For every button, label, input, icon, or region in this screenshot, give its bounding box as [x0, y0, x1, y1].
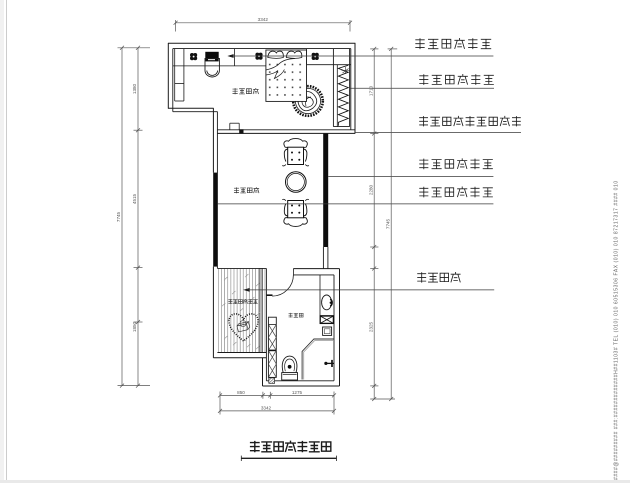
svg-text:1710: 1710	[368, 85, 373, 96]
svg-text:3342: 3342	[261, 405, 272, 410]
svg-text:2325: 2325	[368, 321, 373, 332]
svg-text:1275: 1275	[292, 390, 303, 395]
svg-text:####@######### ###:###########: ####@######### ###:#############H##1103#…	[614, 180, 620, 480]
svg-text:1850: 1850	[132, 321, 137, 332]
svg-text:3342: 3342	[258, 17, 269, 22]
svg-text:4515: 4515	[132, 193, 137, 204]
svg-text:7745: 7745	[116, 211, 121, 222]
svg-text:7745: 7745	[385, 218, 390, 229]
svg-text:850: 850	[237, 390, 245, 395]
svg-text:2280: 2280	[368, 184, 373, 195]
svg-text:1380: 1380	[132, 83, 137, 94]
